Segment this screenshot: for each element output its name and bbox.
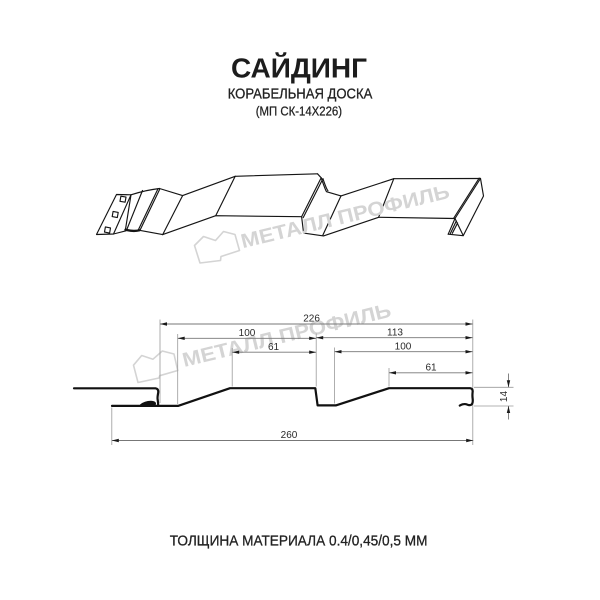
svg-text:260: 260 xyxy=(281,430,298,441)
svg-text:МЕТАЛЛ ПРОФИЛЬ: МЕТАЛЛ ПРОФИЛЬ xyxy=(239,181,452,253)
svg-text:226: 226 xyxy=(303,314,320,325)
svg-text:61: 61 xyxy=(425,362,437,373)
svg-text:ТОЛЩИНА МАТЕРИАЛА 0.4/0,45/0,5: ТОЛЩИНА МАТЕРИАЛА 0.4/0,45/0,5 ММ xyxy=(170,532,428,549)
svg-text:100: 100 xyxy=(395,341,412,352)
svg-text:САЙДИНГ: САЙДИНГ xyxy=(231,52,367,84)
svg-text:МЕТАЛЛ ПРОФИЛЬ: МЕТАЛЛ ПРОФИЛЬ xyxy=(180,300,393,372)
svg-text:КОРАБЕЛЬНАЯ ДОСКА: КОРАБЕЛЬНАЯ ДОСКА xyxy=(228,85,373,102)
svg-text:100: 100 xyxy=(239,328,256,339)
svg-text:(МП СК-14Х226): (МП СК-14Х226) xyxy=(256,105,342,119)
svg-text:113: 113 xyxy=(387,327,403,338)
svg-text:14: 14 xyxy=(499,391,510,403)
svg-text:61: 61 xyxy=(268,342,280,353)
